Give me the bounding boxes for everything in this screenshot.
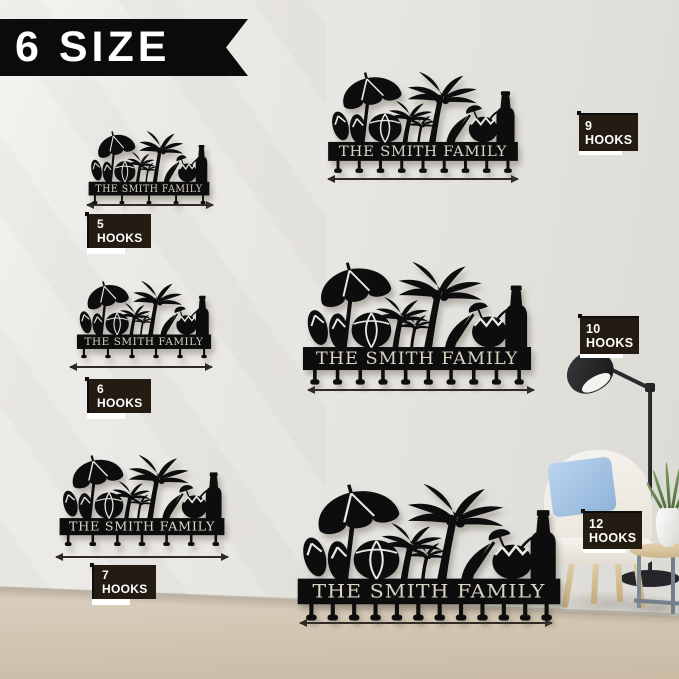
size-label-12in: 12 IN 6 HOOKS [85, 377, 89, 381]
sign-12in: THE SMITH FAMILY [74, 281, 214, 359]
sign-10in: THE SMITH FAMILY [86, 131, 212, 205]
hooks-text: 5 HOOKS [87, 214, 151, 248]
hooks-text: 9 HOOKS [579, 113, 638, 151]
sign-15in: THE SMITH FAMILY [56, 455, 228, 547]
hooks-text: 6 HOOKS [87, 379, 151, 413]
hooks-row [334, 159, 512, 172]
hooks-row [310, 368, 523, 384]
hooks-row [81, 348, 207, 358]
plant-leaf [665, 462, 671, 508]
chair-leg [615, 558, 623, 602]
measure-arrow-18in [328, 178, 518, 180]
size-label-24in: 24 IN 12 HOOKS [581, 509, 585, 513]
measure-arrow-20in [308, 389, 534, 391]
vase [656, 505, 679, 547]
measure-arrow-24in [300, 622, 552, 624]
hooks-text: 10 HOOKS [580, 316, 639, 354]
measure-arrow-15in [56, 556, 228, 558]
product-size-infographic: 6 SIZE THE SMITH FAMILY THE SMITH FAMILY… [0, 0, 679, 679]
banner-text: 6 SIZE [15, 23, 170, 72]
sign-24in: THE SMITH FAMILY [292, 484, 566, 622]
sign-20in: THE SMITH FAMILY [298, 262, 536, 386]
size-label-10in: 10 IN 5 HOOKS [85, 212, 89, 216]
size-label-15in: 15 IN 7 HOOKS [90, 563, 94, 567]
hooks-row [306, 602, 552, 620]
size-label-20in: 20 IN 10 HOOKS [578, 314, 582, 318]
hooks-row [65, 534, 219, 546]
hooks-row [93, 194, 206, 204]
sign-nameplate-text: THE SMITH FAMILY [313, 580, 546, 602]
size-banner: 6 SIZE [0, 19, 248, 76]
sign-nameplate-text: THE SMITH FAMILY [316, 349, 518, 369]
hooks-text: 7 HOOKS [92, 565, 156, 599]
sign-nameplate-text: THE SMITH FAMILY [95, 184, 202, 195]
sign-nameplate-text: THE SMITH FAMILY [339, 144, 507, 160]
sign-nameplate-text: THE SMITH FAMILY [69, 520, 215, 534]
sign-18in: THE SMITH FAMILY [324, 72, 522, 174]
size-label-18in: 18 IN 9 HOOKS [577, 111, 581, 115]
hooks-text: 12 HOOKS [583, 511, 642, 549]
sign-nameplate-text: THE SMITH FAMILY [85, 335, 204, 348]
measure-arrow-12in [70, 366, 212, 368]
